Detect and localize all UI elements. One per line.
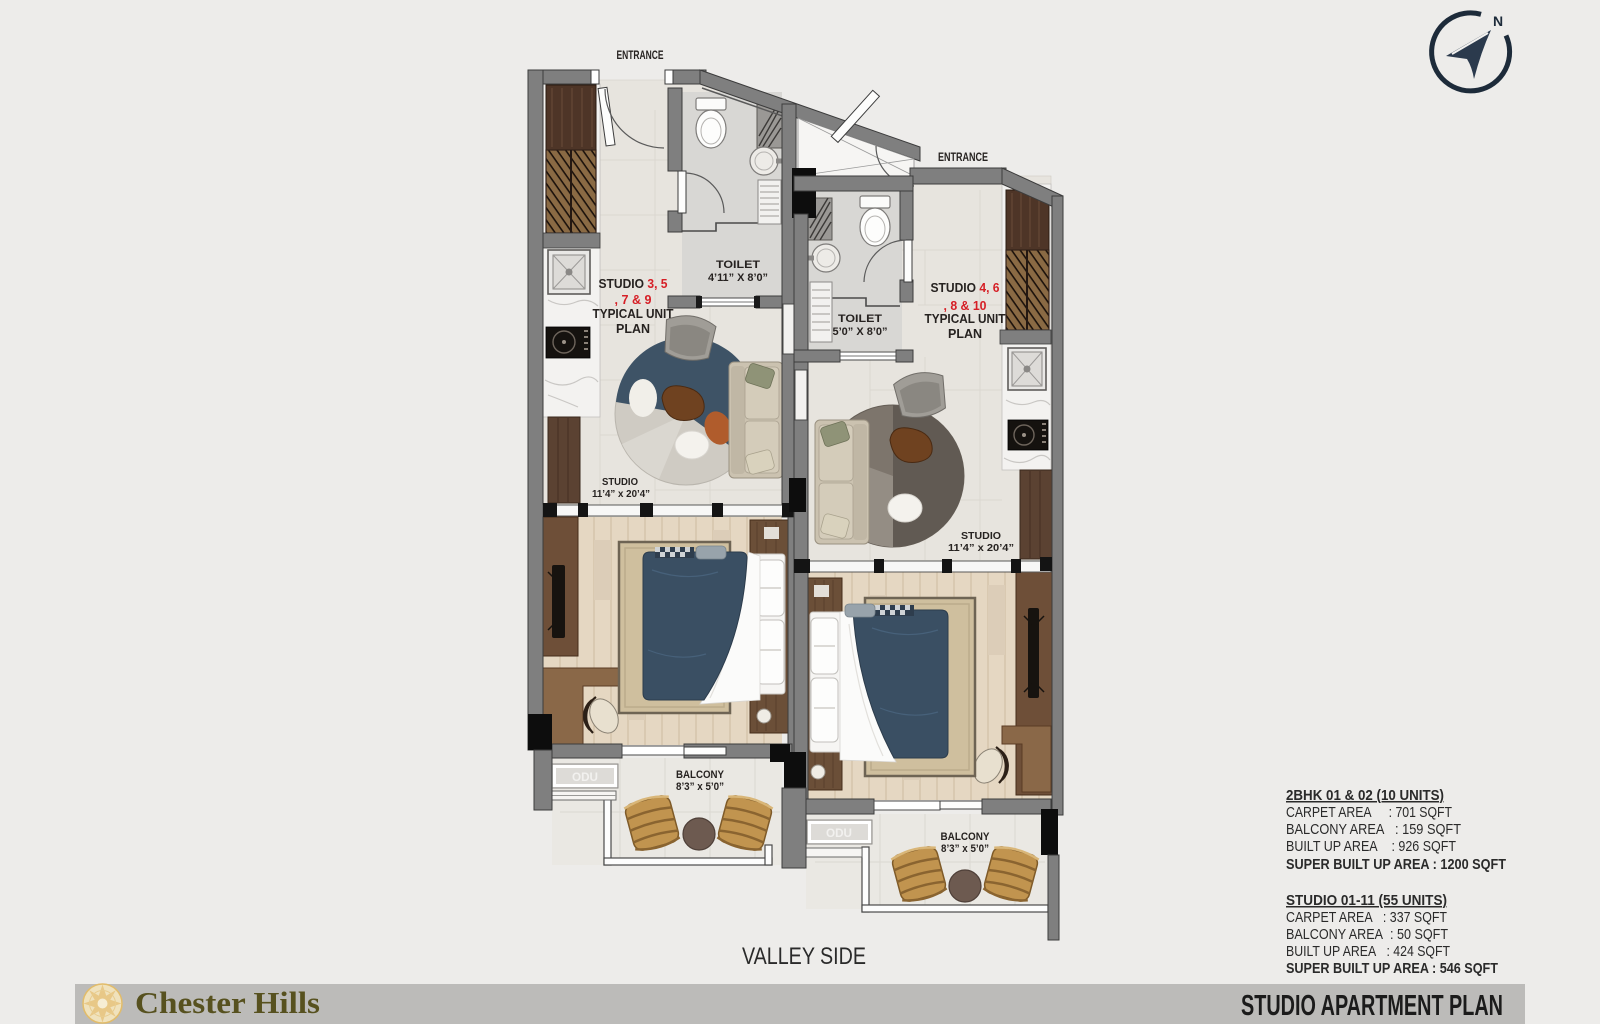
svg-text:STUDIO: STUDIO bbox=[602, 476, 638, 488]
svg-text:TYPICAL UNIT: TYPICAL UNIT bbox=[925, 311, 1006, 326]
svg-text:N: N bbox=[1493, 13, 1503, 29]
svg-text:PLAN: PLAN bbox=[948, 326, 982, 341]
svg-text:BALCONY: BALCONY bbox=[941, 831, 991, 843]
svg-text:11’4” x 20’4”: 11’4” x 20’4” bbox=[948, 542, 1014, 554]
svg-text:Chester Hills: Chester Hills bbox=[135, 985, 320, 1020]
svg-text:8’3” x 5’0”: 8’3” x 5’0” bbox=[676, 781, 724, 793]
svg-text:2BHK 01 & 02 (10 UNITS): 2BHK 01 & 02 (10 UNITS) bbox=[1286, 787, 1444, 804]
svg-text:11’4” x 20’4”: 11’4” x 20’4” bbox=[592, 488, 650, 500]
svg-text:ODU: ODU bbox=[826, 826, 852, 840]
svg-text:TOILET: TOILET bbox=[716, 259, 760, 271]
svg-text:STUDIO 4, 6: STUDIO 4, 6 bbox=[931, 280, 1000, 295]
svg-text:ENTRANCE: ENTRANCE bbox=[617, 48, 664, 62]
svg-text:SUPER BUILT UP AREA : 546 SQFT: SUPER BUILT UP AREA : 546 SQFT bbox=[1286, 960, 1498, 977]
svg-text:CARPET AREA : 701 SQFT: CARPET AREA : 701 SQFT bbox=[1286, 804, 1452, 821]
svg-text:BALCONY AREA : 159 SQFT: BALCONY AREA : 159 SQFT bbox=[1286, 821, 1461, 838]
svg-text:PLAN: PLAN bbox=[616, 321, 650, 336]
svg-text:5’0” X 8’0”: 5’0” X 8’0” bbox=[833, 326, 888, 338]
svg-text:TYPICAL UNIT: TYPICAL UNIT bbox=[593, 306, 674, 321]
svg-text:ENTRANCE: ENTRANCE bbox=[938, 150, 988, 164]
svg-text:CARPET AREA : 337 SQFT: CARPET AREA : 337 SQFT bbox=[1286, 909, 1447, 926]
svg-text:ODU: ODU bbox=[572, 770, 598, 784]
svg-text:VALLEY SIDE: VALLEY SIDE bbox=[742, 943, 866, 970]
svg-text:BUILT UP AREA : 926 SQFT: BUILT UP AREA : 926 SQFT bbox=[1286, 838, 1456, 855]
svg-text:STUDIO 01-11 (55 UNITS): STUDIO 01-11 (55 UNITS) bbox=[1286, 892, 1447, 909]
svg-text:BALCONY AREA : 50 SQFT: BALCONY AREA : 50 SQFT bbox=[1286, 926, 1448, 943]
svg-text:SUPER BUILT UP AREA : 1200 SQF: SUPER BUILT UP AREA : 1200 SQFT bbox=[1286, 856, 1506, 873]
svg-text:STUDIO APARTMENT PLAN: STUDIO APARTMENT PLAN bbox=[1241, 990, 1503, 1022]
svg-text:4’11” X 8’0”: 4’11” X 8’0” bbox=[708, 272, 768, 284]
svg-text:STUDIO: STUDIO bbox=[961, 530, 1001, 542]
svg-text:TOILET: TOILET bbox=[838, 313, 882, 325]
svg-text:BALCONY: BALCONY bbox=[676, 769, 725, 781]
svg-text:STUDIO 3, 5: STUDIO 3, 5 bbox=[599, 276, 668, 291]
svg-text:, 7 & 9: , 7 & 9 bbox=[615, 292, 652, 307]
svg-text:BUILT UP AREA : 424 SQFT: BUILT UP AREA : 424 SQFT bbox=[1286, 943, 1450, 960]
svg-text:8’3” x 5’0”: 8’3” x 5’0” bbox=[941, 843, 989, 855]
